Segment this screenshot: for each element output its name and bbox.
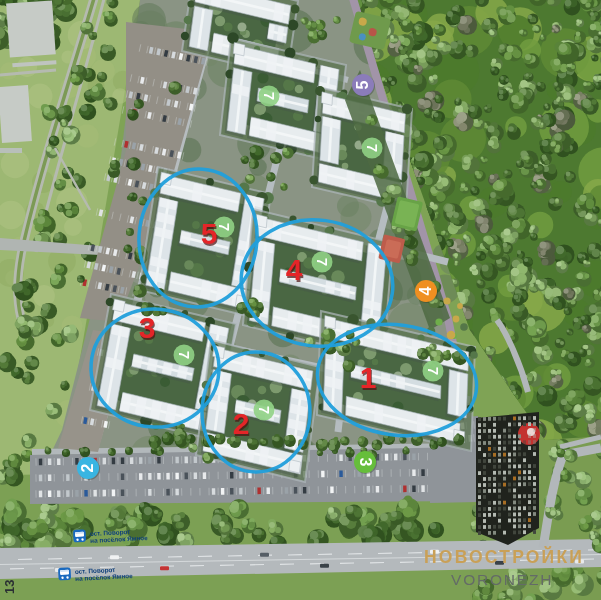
svg-text:4: 4 bbox=[286, 253, 303, 286]
svg-text:7: 7 bbox=[256, 406, 273, 414]
svg-text:7: 7 bbox=[364, 144, 381, 152]
svg-text:VORONEZH: VORONEZH bbox=[451, 571, 553, 588]
svg-text:НОВОСТРОЙКИ: НОВОСТРОЙКИ bbox=[424, 546, 584, 567]
svg-text:2: 2 bbox=[233, 407, 250, 440]
svg-text:3: 3 bbox=[357, 458, 374, 467]
svg-text:13: 13 bbox=[2, 580, 17, 594]
svg-text:7: 7 bbox=[314, 258, 331, 266]
svg-text:5: 5 bbox=[201, 217, 218, 250]
svg-text:5: 5 bbox=[354, 80, 371, 89]
svg-text:7: 7 bbox=[261, 92, 278, 100]
svg-text:7: 7 bbox=[425, 367, 442, 375]
svg-text:7: 7 bbox=[216, 223, 233, 231]
svg-text:3: 3 bbox=[139, 311, 156, 344]
svg-text:4: 4 bbox=[417, 286, 434, 295]
svg-text:1: 1 bbox=[360, 361, 377, 394]
svg-text:7: 7 bbox=[176, 351, 193, 359]
svg-text:2: 2 bbox=[79, 463, 96, 472]
